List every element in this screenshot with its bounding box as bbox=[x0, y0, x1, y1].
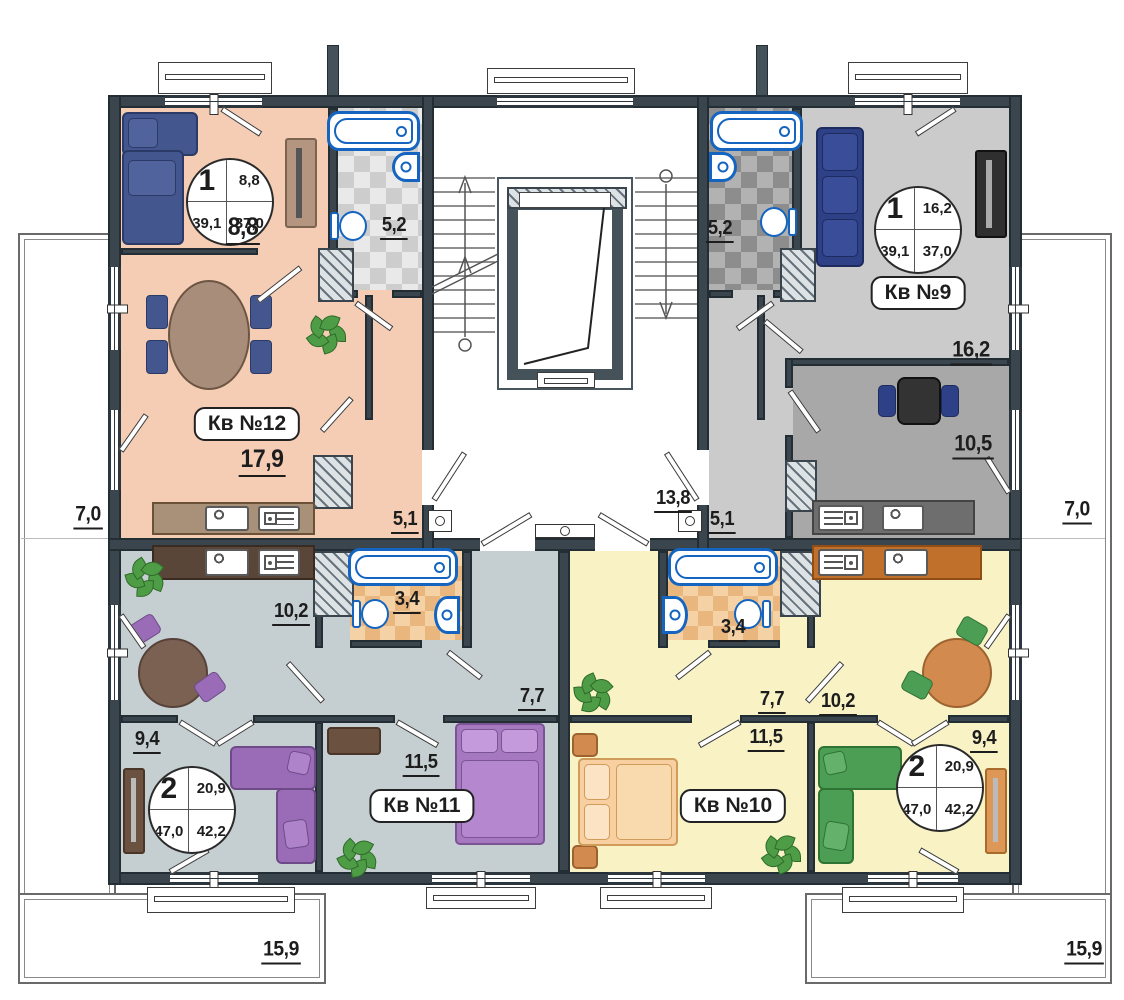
terrace-divider-line bbox=[1015, 538, 1105, 539]
kv10-nightstand bbox=[572, 733, 598, 757]
kv9-sofa-cushion bbox=[822, 133, 858, 171]
plant-icon bbox=[124, 556, 166, 598]
kv12-bath-wall bbox=[392, 290, 422, 298]
kv12-bathtub bbox=[327, 111, 420, 151]
kv11-info-circle: 2 20,9 47,0 42,2 bbox=[148, 766, 236, 854]
kv10-window-right bbox=[1009, 605, 1022, 700]
kv11-room-partition bbox=[121, 715, 178, 723]
kv11-bathtub bbox=[348, 548, 458, 586]
kv11-name-tag: Кв №11 bbox=[369, 789, 474, 823]
kv9-bathroom-area-label: 5,2 bbox=[706, 217, 734, 243]
terrace-left-area-label: 7,0 bbox=[73, 503, 102, 530]
window-mullion bbox=[107, 648, 128, 657]
kv12-bathroom-area-label: 5,2 bbox=[380, 214, 408, 240]
sink-icon bbox=[818, 505, 864, 531]
kv11-wardrobe bbox=[327, 727, 381, 755]
kv12-chair bbox=[146, 295, 168, 329]
sink-icon bbox=[818, 549, 864, 576]
terrace-right-area-label: 7,0 bbox=[1062, 498, 1091, 525]
kv9-tv-screen bbox=[986, 160, 992, 228]
elevator-door-sill bbox=[537, 372, 595, 388]
electrical-box bbox=[678, 510, 702, 532]
kv12-living-area-label: 8,8 bbox=[226, 213, 260, 245]
drainer-lines bbox=[824, 555, 843, 570]
kv9-terrace-door bbox=[1009, 410, 1022, 490]
window-mullion bbox=[1008, 304, 1029, 313]
kv10-bed-blanket bbox=[616, 764, 672, 840]
kv12-chair bbox=[146, 340, 168, 374]
kv12-sofa-cushion bbox=[128, 118, 158, 148]
elevator-door-line bbox=[518, 198, 612, 369]
vent-pipe bbox=[756, 45, 768, 99]
vent-shaft bbox=[318, 248, 354, 302]
plant-icon bbox=[305, 312, 347, 354]
kv11-bedroom-partition bbox=[315, 722, 323, 872]
kv10-kitchen-area-label: 10,2 bbox=[819, 690, 857, 716]
kv12-sofa-cushion bbox=[128, 160, 176, 196]
kv10-nightstand bbox=[572, 845, 598, 869]
kv11-bedroom2-area-label: 9,4 bbox=[133, 728, 161, 754]
kv10-room-partition bbox=[570, 715, 692, 723]
stairs-down-arrow bbox=[633, 162, 699, 334]
window-mullion bbox=[107, 304, 128, 313]
plant-icon bbox=[572, 672, 614, 714]
kv10-bed-pillow bbox=[584, 804, 610, 840]
kv11-bedroom-area-label: 11,5 bbox=[403, 751, 440, 777]
stairwell-window bbox=[497, 95, 633, 108]
balcony-slab bbox=[158, 62, 272, 94]
kv11-bed-pillow bbox=[501, 729, 538, 753]
sink-basin bbox=[844, 511, 858, 525]
kv10-info-circle: 2 20,9 47,0 42,2 bbox=[896, 744, 984, 832]
window-mullion bbox=[1008, 648, 1029, 657]
drainer-lines bbox=[824, 511, 843, 525]
kv10-sofa-cushion bbox=[822, 750, 848, 776]
stairs-up-arrow bbox=[430, 165, 505, 360]
kv11-toilet-tank bbox=[352, 600, 361, 628]
kv11-room-partition bbox=[443, 715, 558, 723]
kv9-chair bbox=[878, 385, 896, 417]
window-mullion bbox=[903, 94, 912, 115]
kv12-living-partition bbox=[121, 248, 258, 255]
kv9-name-tag: Кв №9 bbox=[871, 276, 966, 310]
kv10-bedroom-area-label: 11,5 bbox=[748, 726, 785, 752]
kv11-bath-wall bbox=[315, 613, 323, 648]
stove-icon bbox=[205, 549, 249, 576]
kv11-bath-wall bbox=[350, 640, 422, 648]
kv11-balcony-door-window bbox=[170, 872, 258, 885]
kv11-bed-pillow bbox=[461, 729, 498, 753]
kv10-sofa-cushion bbox=[822, 820, 850, 852]
kv10-tv-screen bbox=[993, 778, 998, 842]
stair-landing-area-label: 13,8 bbox=[654, 487, 692, 513]
kv12-dining-table bbox=[168, 280, 250, 390]
terrace-bottom-right-area-label: 15,9 bbox=[1064, 938, 1103, 965]
kv10-hall-area-label: 7,7 bbox=[758, 688, 786, 714]
terrace-left bbox=[18, 233, 116, 984]
kv10-room-partition bbox=[948, 715, 1009, 723]
kv9-living-area-label: 16,2 bbox=[950, 337, 991, 366]
kv11-room-partition bbox=[253, 715, 395, 723]
terrace-bottom-left-area-label: 15,9 bbox=[261, 938, 300, 965]
kv9-bath-wall bbox=[709, 290, 733, 298]
kv11-tv-screen bbox=[131, 778, 136, 842]
window-sill bbox=[842, 887, 964, 913]
kv10-washbasin bbox=[662, 596, 688, 634]
kv9-table bbox=[897, 377, 941, 425]
kv11-bedroom-window bbox=[432, 872, 530, 885]
kv9-hall-area-label: 5,1 bbox=[708, 508, 736, 534]
kv12-washbasin bbox=[392, 152, 420, 182]
sink-basin bbox=[264, 512, 277, 525]
kv11-washbasin bbox=[434, 596, 460, 634]
sink-icon bbox=[258, 549, 300, 576]
sink-basin bbox=[264, 555, 277, 570]
kv11-bath-wall bbox=[462, 551, 472, 648]
kv10-bedroom2-area-label: 9,4 bbox=[970, 727, 998, 753]
kv11-toilet-bowl bbox=[361, 599, 389, 629]
kv9-info-circle: 1 16,2 39,1 37,0 bbox=[874, 186, 962, 274]
stove-icon bbox=[884, 549, 928, 576]
kv12-chair bbox=[250, 340, 272, 374]
kv9-kitchen-partition bbox=[785, 358, 793, 388]
kv11-bathroom-area-label: 3,4 bbox=[393, 588, 421, 614]
kv10-name-tag: Кв №10 bbox=[680, 789, 786, 823]
kv10-bedroom-window bbox=[608, 872, 705, 885]
kv11-sofa-cushion bbox=[286, 750, 312, 776]
kv9-toilet-tank bbox=[788, 208, 797, 236]
plant-icon bbox=[336, 836, 378, 878]
kv12-window-top bbox=[165, 95, 262, 108]
kv10-toilet-tank bbox=[762, 600, 771, 628]
terrace-divider-line bbox=[21, 538, 109, 539]
kv9-toilet-bowl bbox=[760, 207, 788, 237]
vent-shaft bbox=[780, 248, 816, 302]
kv11-round-table bbox=[138, 638, 208, 708]
kv11-kitchen-area-label: 10,2 bbox=[272, 600, 310, 626]
party-wall bbox=[558, 551, 570, 872]
window-sill bbox=[426, 887, 536, 909]
drainer-lines bbox=[277, 512, 294, 525]
window-mullion bbox=[209, 94, 218, 115]
kv10-balcony-door-window bbox=[868, 872, 958, 885]
kv9-sofa-cushion bbox=[822, 219, 858, 257]
sink-basin bbox=[844, 555, 858, 570]
vent-shaft bbox=[313, 455, 353, 509]
kv9-window-top bbox=[855, 95, 960, 108]
kv10-bathtub bbox=[668, 548, 778, 586]
window-sill bbox=[147, 887, 295, 913]
kv10-bathroom-area-label: 3,4 bbox=[719, 616, 747, 642]
stove-icon bbox=[205, 506, 249, 531]
kv9-washbasin bbox=[709, 152, 737, 182]
kv12-kitchen-area-label: 17,9 bbox=[239, 445, 286, 477]
kv12-toilet-bowl bbox=[339, 211, 367, 241]
kv10-bath-wall bbox=[807, 613, 815, 648]
kv11-window-left bbox=[108, 605, 121, 700]
stove-icon bbox=[882, 505, 924, 531]
kv9-sofa-cushion bbox=[822, 176, 858, 214]
drainer-lines bbox=[277, 555, 294, 570]
window-sill bbox=[487, 68, 635, 94]
kv10-round-table bbox=[922, 638, 992, 708]
kv12-window-left bbox=[108, 267, 121, 350]
kv10-bedroom-partition bbox=[807, 722, 815, 872]
electrical-box bbox=[428, 510, 452, 532]
kv12-toilet-tank bbox=[330, 212, 339, 240]
balcony-slab bbox=[848, 62, 968, 94]
kv11-sofa-cushion bbox=[282, 818, 310, 849]
kv12-name-tag: Кв №12 bbox=[194, 407, 300, 441]
kv12-tv-screen bbox=[296, 148, 302, 218]
kv9-bathtub bbox=[710, 111, 803, 151]
window-sill bbox=[600, 887, 712, 909]
sink-icon bbox=[258, 506, 300, 531]
kv9-kitchen-area-label: 10,5 bbox=[952, 431, 993, 460]
floor-plan: 1 8,8 39,1 37,0 1 16,2 39,1 37,0 2 20,9 … bbox=[0, 0, 1124, 1000]
terrace-right bbox=[1012, 233, 1112, 984]
wall-left bbox=[108, 95, 121, 885]
kv12-hall-area-label: 5,1 bbox=[391, 508, 419, 534]
plant-icon bbox=[760, 832, 802, 874]
entrance-step bbox=[535, 524, 595, 538]
kv9-window-right bbox=[1009, 267, 1022, 350]
kv9-chair bbox=[941, 385, 959, 417]
kv11-hall-area-label: 7,7 bbox=[518, 685, 546, 711]
kv10-bed-pillow bbox=[584, 764, 610, 800]
vent-pipe bbox=[327, 45, 339, 99]
